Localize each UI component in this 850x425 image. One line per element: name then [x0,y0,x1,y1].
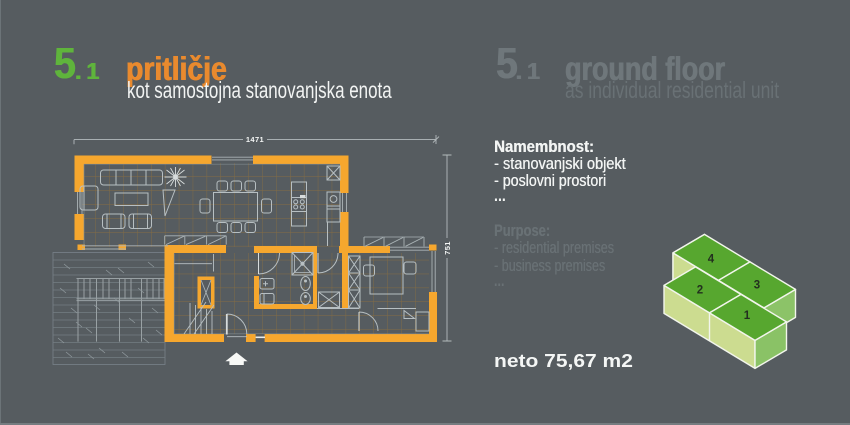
svg-text:4: 4 [708,254,715,266]
svg-text:1: 1 [744,310,751,322]
svg-text:3: 3 [754,280,760,292]
svg-text:751: 751 [443,241,452,255]
svg-text:2: 2 [697,285,703,297]
svg-text:1471: 1471 [246,135,264,144]
